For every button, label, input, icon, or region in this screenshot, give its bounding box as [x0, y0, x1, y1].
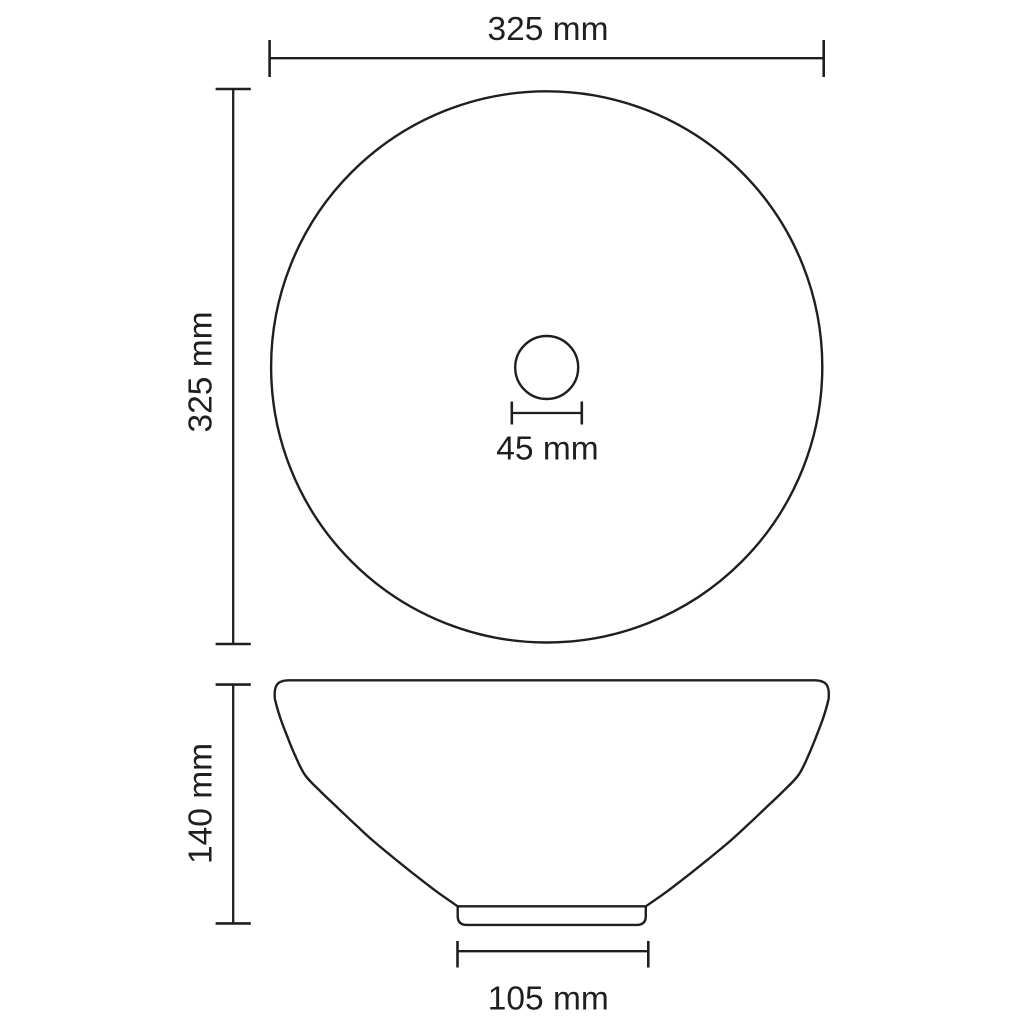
svg-text:105 mm: 105 mm: [488, 981, 609, 1018]
svg-text:45 mm: 45 mm: [496, 431, 598, 468]
svg-text:325 mm: 325 mm: [487, 11, 608, 48]
svg-text:140 mm: 140 mm: [183, 743, 220, 864]
svg-text:325 mm: 325 mm: [183, 311, 220, 432]
